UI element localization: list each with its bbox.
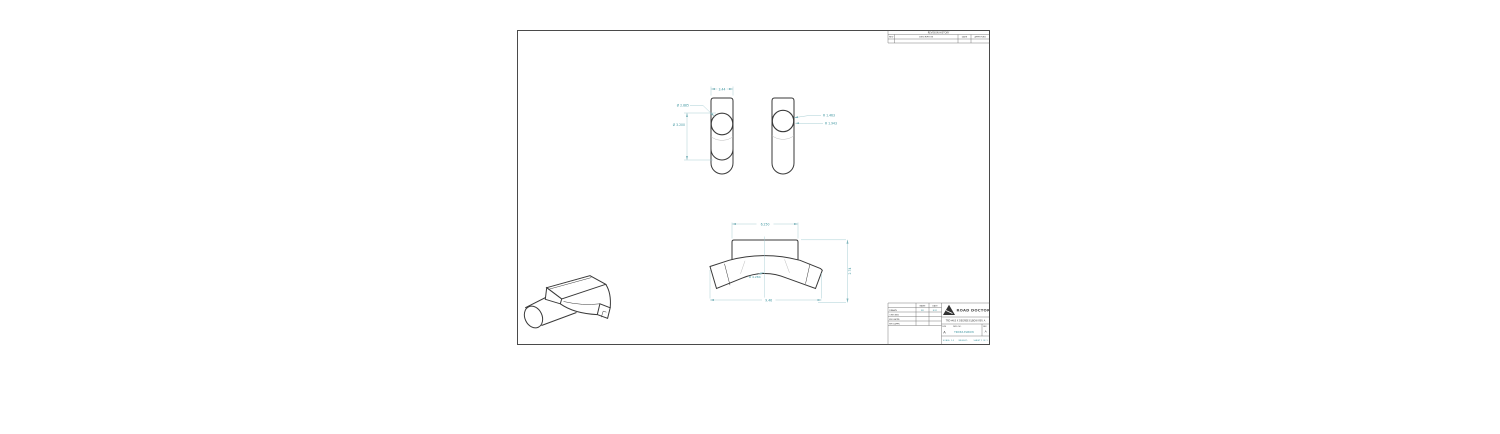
side-left-body xyxy=(711,98,733,174)
dwg-no-label: DWG. NO. xyxy=(953,326,962,328)
titleblock-col-date: DATE xyxy=(932,304,938,307)
dim-front-width-top: 6.250 xyxy=(761,222,770,226)
drawing-sheet: REVISION HISTORY REV DESCRIPTION DATE AP… xyxy=(517,30,990,345)
dim-side-dia-outer: Ø 2.885 xyxy=(677,103,689,108)
dim-side-width: 3.44 xyxy=(719,87,726,91)
side-right-body xyxy=(772,98,794,174)
dim-front-radius: R 4.284 xyxy=(749,275,761,279)
revision-col-approved: APPROVED xyxy=(975,36,987,39)
company-name: ROAD DOCTORS xyxy=(957,308,991,313)
revision-col-rev: REV xyxy=(889,37,894,39)
titleblock-row-checked: CHECKED xyxy=(889,314,899,316)
cad-viewport: REVISION HISTORY REV DESCRIPTION DATE AP… xyxy=(0,0,1500,434)
titleblock-row-mfg: MFG APPR. xyxy=(889,322,900,325)
scale-text: SCALE: 1:2 xyxy=(943,339,955,342)
dim-side-r-outer: R 1.463 xyxy=(823,114,835,118)
dim-side-r-inner: R 1.943 xyxy=(825,122,837,126)
size-label: SIZE xyxy=(942,326,946,328)
dim-side-dia-inner: Ø 3.200 xyxy=(673,122,685,127)
dim-front-width-bottom: 9.46 xyxy=(765,298,772,302)
titleblock-row-eng: ENG APPR. xyxy=(889,318,900,321)
weight-text: WEIGHT: xyxy=(959,340,968,342)
titleblock-col-name: NAME xyxy=(920,304,927,307)
sheet-text: SHEET 1 OF 1 xyxy=(974,340,989,342)
drawing-title: TRD #63 X DEGREE ELBOW REV A xyxy=(946,320,986,323)
revision-col-date: DATE xyxy=(962,36,968,39)
dwg-no-value: TRD63-ELBOW xyxy=(953,330,974,334)
revision-col-description: DESCRIPTION xyxy=(919,37,934,39)
dim-front-height: 2.74 xyxy=(848,268,852,275)
titleblock-drawn-date: 8/21 xyxy=(933,310,938,312)
titleblock-row-drawn: DRAWN xyxy=(889,309,897,312)
sheet-border xyxy=(518,31,990,345)
revision-table-title: REVISION HISTORY xyxy=(928,31,950,34)
titleblock-drawn-name: RD xyxy=(921,310,924,312)
